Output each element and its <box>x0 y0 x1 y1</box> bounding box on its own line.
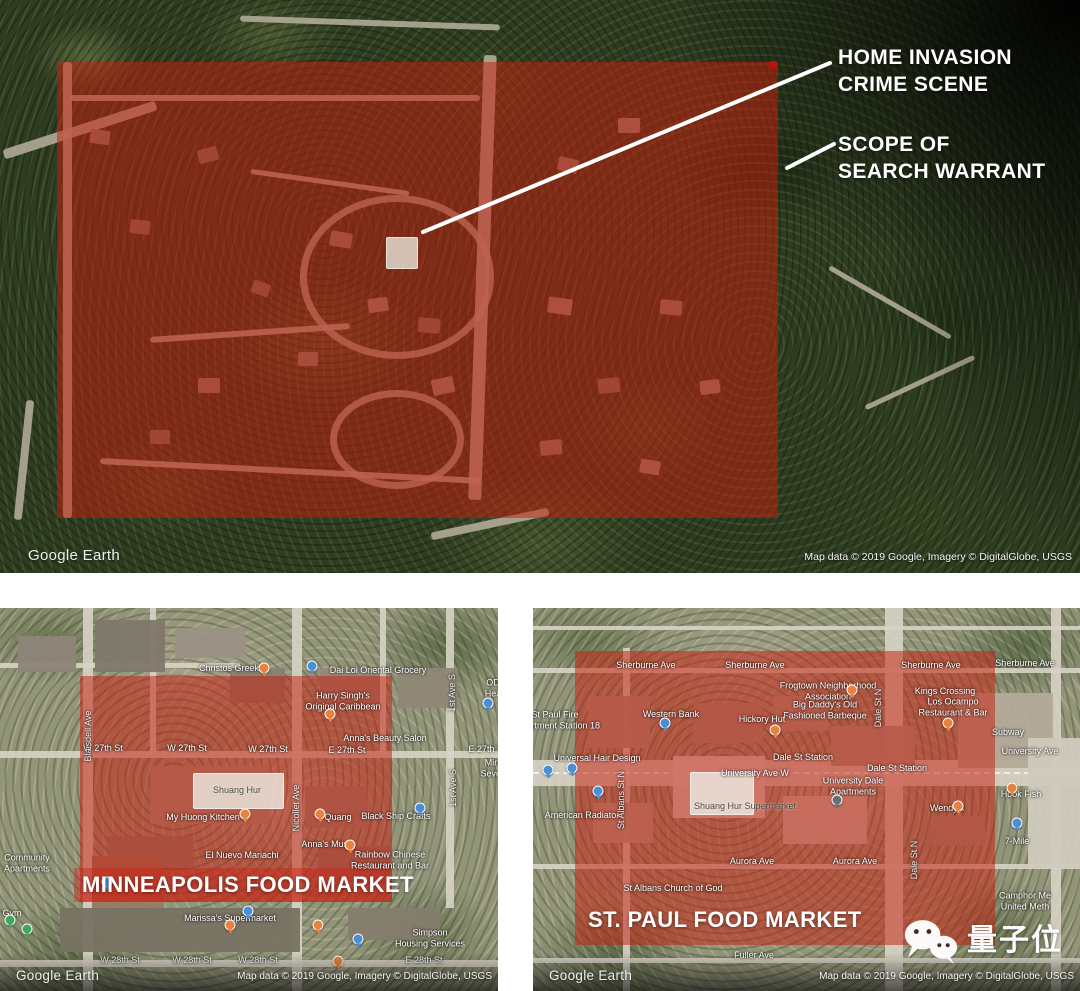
map-pin-icon <box>483 698 494 709</box>
map-pin-icon <box>259 663 270 674</box>
map-pin-icon <box>660 718 671 729</box>
map-label: Quang <box>324 812 351 823</box>
watermark: 量子位 <box>903 918 1063 964</box>
map-pin-icon <box>1012 818 1023 829</box>
infographic: HOME INVASION CRIME SCENE SCOPE OF SEARC… <box>0 0 1080 991</box>
map-label: Aurora Ave <box>833 856 877 867</box>
map-label: Sherburne Ave <box>616 660 675 671</box>
google-earth-logo: Google Earth <box>16 968 99 984</box>
map-label: Anna's Beauty Salon <box>343 733 426 744</box>
map-label: University Dale Apartments <box>823 776 884 797</box>
map-label: Minne Seventh <box>480 758 498 779</box>
crime-scene-marker <box>386 237 418 269</box>
map-label: Sherburne Ave <box>901 660 960 671</box>
map-label: Simpson Housing Services <box>395 928 465 949</box>
map-label: Frogtown Neighborhood Association <box>780 681 877 702</box>
google-earth-logo: Google Earth <box>549 968 632 984</box>
map-pin-icon <box>313 920 324 931</box>
map-pin-icon <box>345 840 356 851</box>
corner-marker-icon <box>769 61 777 69</box>
map-label: Kings Crossing <box>915 686 976 697</box>
map-label: 1st Ave S <box>448 769 459 807</box>
map-label: Rainbow Chinese Restaurant and Bar <box>351 850 429 871</box>
map-label: W 27th St <box>83 743 123 754</box>
map-label: St Albans Church of God <box>623 883 722 894</box>
top-satellite-map: HOME INVASION CRIME SCENE SCOPE OF SEARC… <box>0 0 1080 573</box>
map-pin-icon <box>325 709 336 720</box>
map-label: Sherburne Ave <box>995 658 1054 669</box>
minneapolis-title: MINNEAPOLIS FOOD MARKET <box>82 873 414 897</box>
minneapolis-map: Christos GreekDai Loi Oriental GroceryOD… <box>0 608 498 991</box>
map-pin-icon <box>832 795 843 806</box>
map-label: Big Daddy's Old Fashioned Barbeque <box>783 700 867 721</box>
highlight-label: Shuang Hur <box>213 785 261 795</box>
map-pin-icon <box>593 786 604 797</box>
map-label: Camphor Me United Meth <box>999 891 1051 912</box>
map-label: Harry Singh's Original Caribbean <box>305 691 380 712</box>
map-label-layer: Christos GreekDai Loi Oriental GroceryOD… <box>0 608 498 991</box>
map-label: My Huong Kitchen <box>166 812 240 823</box>
map-label: E 27th St <box>468 744 498 755</box>
highlight-label: Shuang Hur Supermarket <box>694 801 796 811</box>
map-attribution: Map data © 2019 Google, Imagery © Digita… <box>819 971 1074 983</box>
map-label: American Radiator <box>545 810 620 821</box>
map-pin-icon <box>243 906 254 917</box>
map-pin-icon <box>770 725 781 736</box>
map-label: Dale St N <box>909 841 920 880</box>
map-label: W 27th St <box>248 744 288 755</box>
map-label: St Paul Fire Department Station 18 <box>533 710 600 731</box>
google-earth-logo: Google Earth <box>28 548 120 564</box>
map-label: Community Apartments <box>4 853 50 874</box>
map-pin-icon <box>5 915 16 926</box>
map-label: St Albans St N <box>616 771 627 829</box>
wechat-icon <box>903 918 959 964</box>
map-pin-icon <box>315 809 326 820</box>
map-label: University Ave W <box>721 768 789 779</box>
map-label: Western Bank <box>643 709 699 720</box>
map-label: Aurora Ave <box>730 856 774 867</box>
map-label: Sherburne Ave <box>725 660 784 671</box>
watermark-text: 量子位 <box>967 925 1063 957</box>
map-pin-icon <box>225 920 236 931</box>
map-label: Los Ocampo Restaurant & Bar <box>918 697 987 718</box>
search-warrant-label: SCOPE OF SEARCH WARRANT <box>838 131 1045 185</box>
map-label: Dale St Station <box>867 763 927 774</box>
map-pin-icon <box>22 924 33 935</box>
map-label: Christos Greek <box>199 663 259 674</box>
map-label: W 27th St <box>167 743 207 754</box>
map-pin-icon <box>353 934 364 945</box>
map-pin-icon <box>240 809 251 820</box>
map-label: Nicollet Ave <box>291 785 302 832</box>
map-label: Subway <box>992 727 1024 738</box>
map-pin-icon <box>953 801 964 812</box>
map-pin-icon <box>543 765 554 776</box>
map-label: 7-Mile <box>1005 836 1030 847</box>
map-attribution: Map data © 2019 Google, Imagery © Digita… <box>804 551 1072 563</box>
map-label: Blaisdell Ave <box>83 711 94 762</box>
map-pin-icon <box>943 718 954 729</box>
map-label: OD Hea <box>485 678 498 699</box>
stpaul-title: ST. PAUL FOOD MARKET <box>588 908 862 932</box>
map-pin-icon <box>307 661 318 672</box>
map-pin-icon <box>847 685 858 696</box>
map-label: Dale St N <box>873 689 884 728</box>
map-label: Hickory Hut <box>739 714 786 725</box>
map-label: E 27th St <box>328 745 365 756</box>
home-invasion-label: HOME INVASION CRIME SCENE <box>838 44 1012 98</box>
map-label: Dai Loi Oriental Grocery <box>330 665 427 676</box>
search-warrant-overlay <box>57 62 778 518</box>
map-label: 1st Ave S <box>447 674 458 712</box>
map-label: Universal Hair Design <box>553 753 640 764</box>
map-label: El Nuevo Mariachi <box>205 850 278 861</box>
map-pin-icon <box>415 803 426 814</box>
map-pin-icon <box>567 763 578 774</box>
map-attribution: Map data © 2019 Google, Imagery © Digita… <box>237 971 492 983</box>
map-label: Dale St Station <box>773 752 833 763</box>
map-pin-icon <box>1007 783 1018 794</box>
map-label: University Ave <box>1002 746 1059 757</box>
